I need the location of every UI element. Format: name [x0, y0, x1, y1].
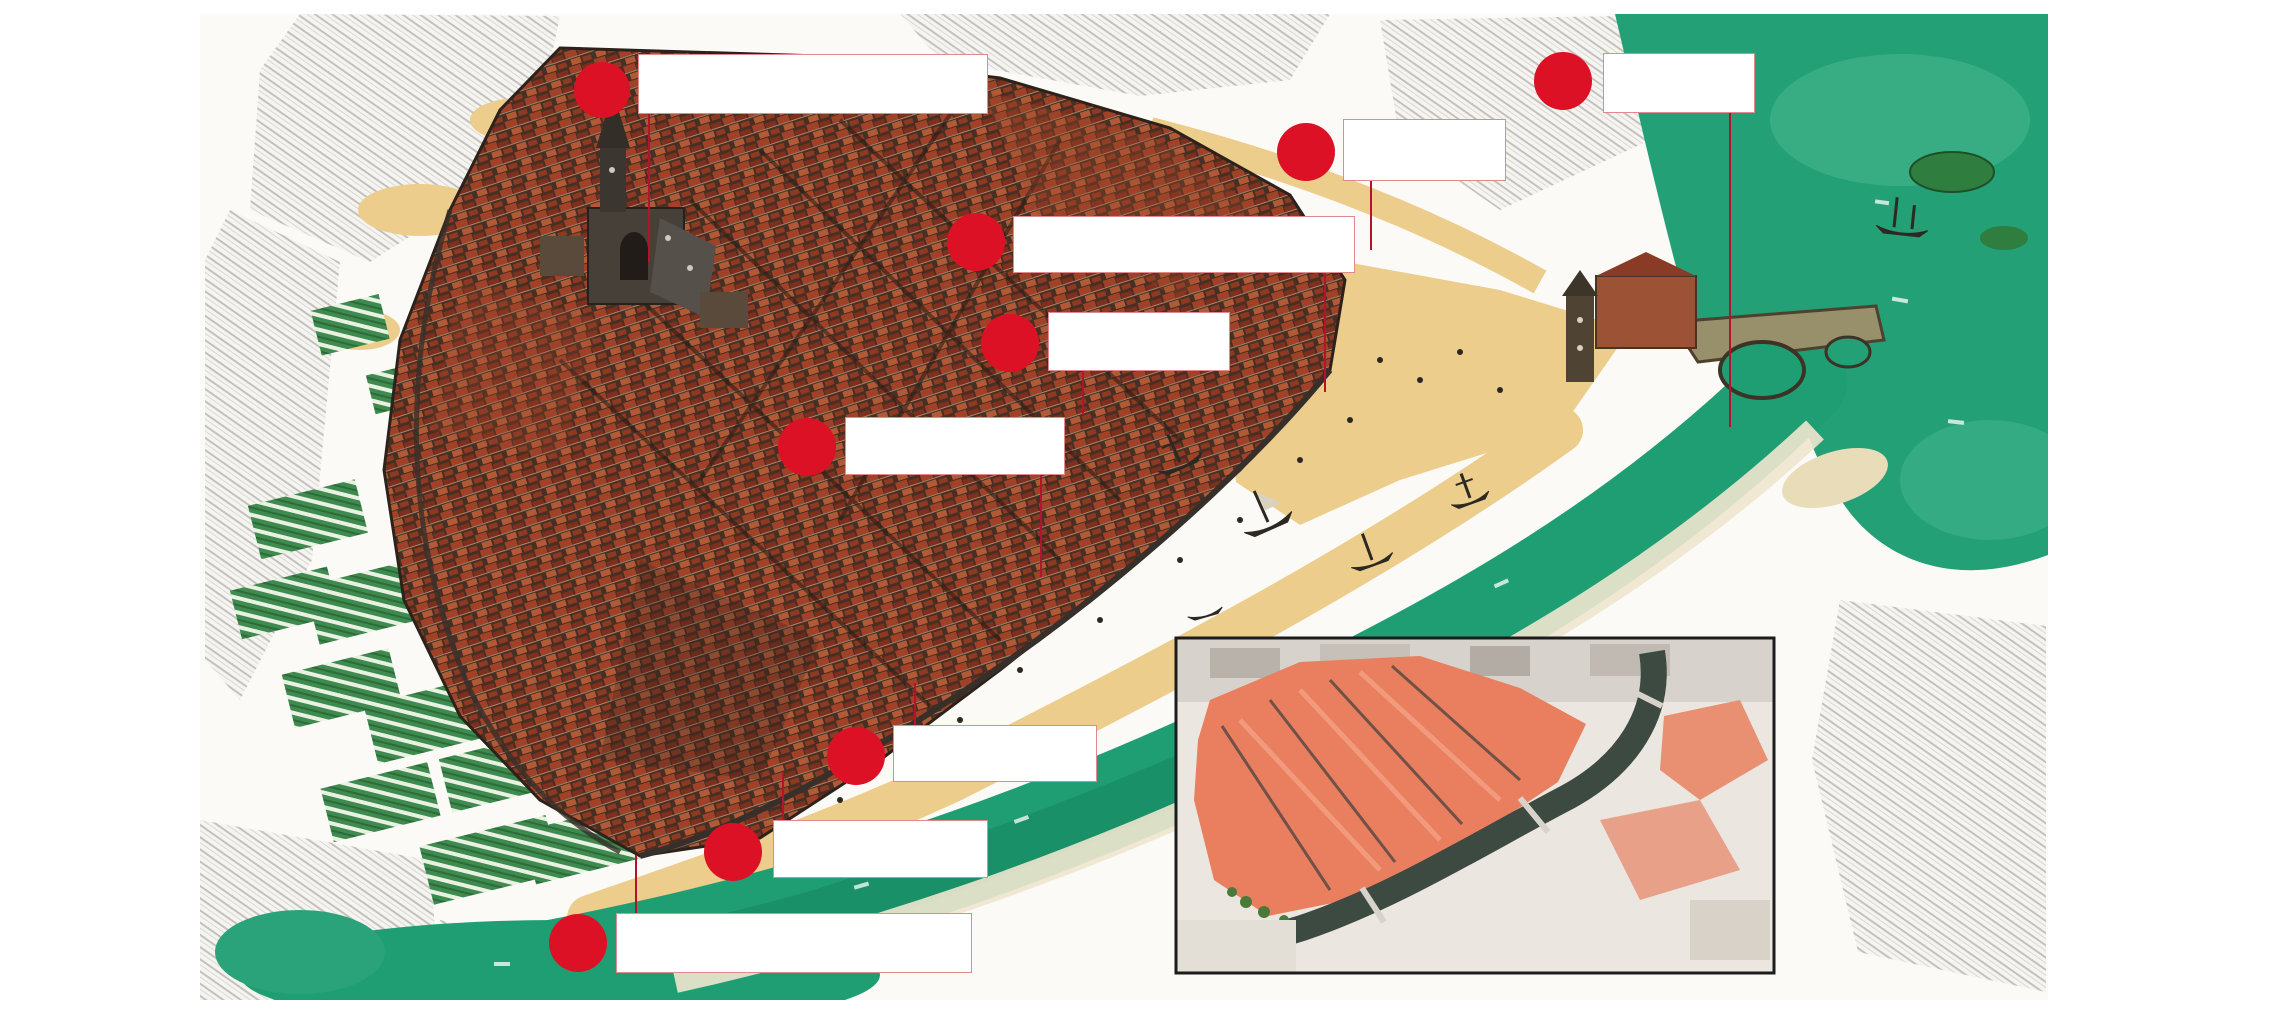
map-label-box: [638, 54, 988, 114]
map-marker-dot: [549, 914, 607, 972]
map-label-box: [1048, 312, 1230, 371]
leader-line: [914, 683, 916, 725]
inset-aerial-photo: [1176, 638, 1774, 973]
map-marker-dot: [574, 62, 630, 118]
map-label-box: [616, 913, 972, 973]
map-label-box: [773, 820, 988, 878]
map-marker-dot: [1534, 52, 1592, 110]
map-marker-dot: [947, 213, 1005, 271]
map-label-box: [845, 417, 1065, 475]
leader-line: [1370, 181, 1372, 250]
page: [0, 0, 2280, 1032]
leader-line: [1082, 371, 1084, 415]
leader-line: [782, 772, 784, 820]
leader-line: [1040, 475, 1042, 577]
map-marker-dot: [827, 727, 885, 785]
leader-line: [648, 114, 650, 262]
leader-line: [1729, 113, 1731, 427]
map-marker-dot: [704, 823, 762, 881]
map-marker-dot: [1277, 123, 1335, 181]
map-label-box: [1603, 53, 1755, 113]
map-label-box: [1343, 119, 1506, 181]
leader-line: [635, 855, 637, 913]
map-marker-dot: [778, 418, 836, 476]
historical-map-illustration: [0, 0, 2280, 1032]
leader-line: [1324, 273, 1326, 392]
map-label-box: [893, 725, 1097, 782]
map-label-box: [1013, 216, 1355, 273]
map-marker-dot: [981, 314, 1039, 372]
